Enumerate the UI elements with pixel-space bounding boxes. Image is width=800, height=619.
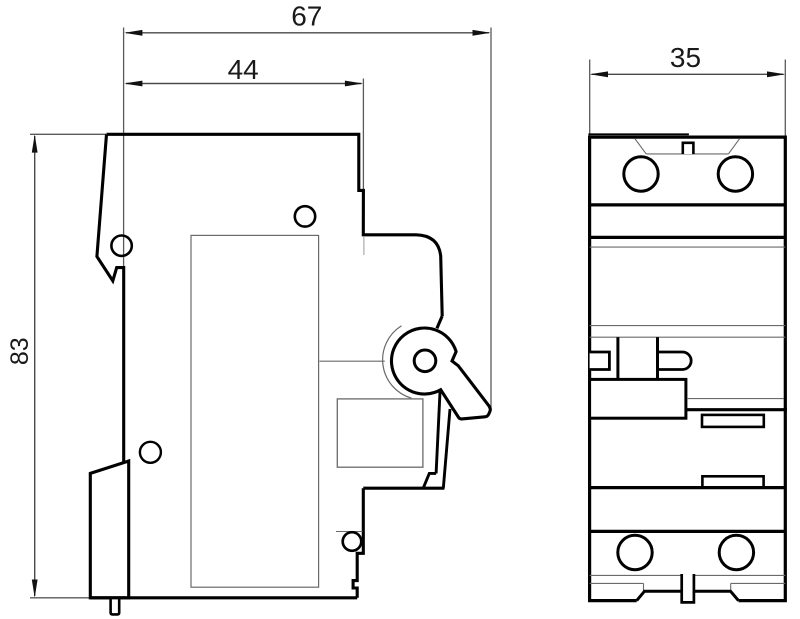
svg-text:67: 67 <box>291 1 322 32</box>
svg-text:44: 44 <box>228 54 259 85</box>
svg-text:35: 35 <box>670 42 701 73</box>
svg-text:83: 83 <box>6 337 34 365</box>
